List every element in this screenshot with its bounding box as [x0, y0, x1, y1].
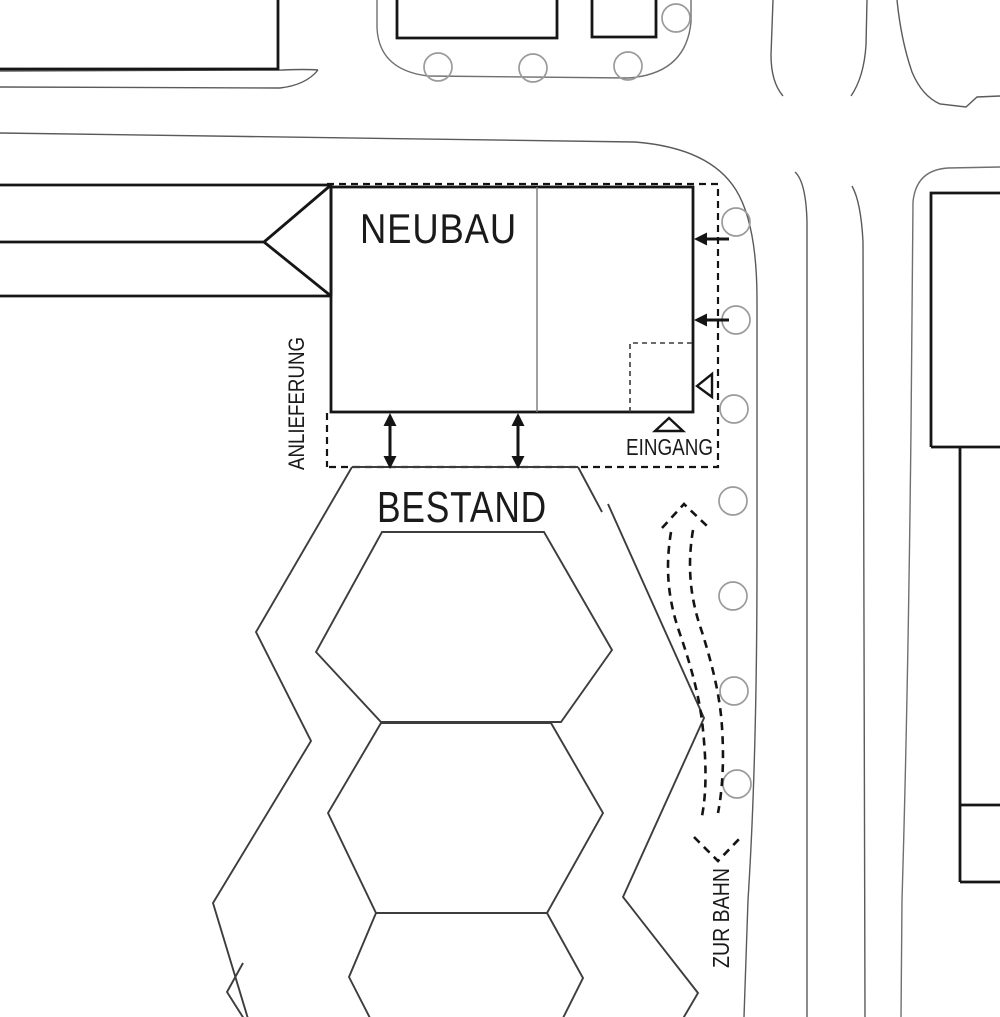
pedestrian-path	[662, 504, 742, 861]
tree-icon	[662, 4, 690, 32]
label-anlieferung: ANLIEFERUNG	[284, 337, 309, 470]
road-line-middle	[795, 172, 807, 1017]
delivery-arrow-left-head-up	[384, 413, 397, 426]
hip-roof-ridge	[0, 185, 331, 296]
bestand-outline-left-inner	[227, 963, 246, 1017]
hexagon-hall-middle	[328, 723, 603, 913]
building-top-center-right	[592, 0, 656, 37]
entry-arrow-upper-head	[694, 233, 707, 246]
bestand-building	[213, 467, 704, 1017]
neighbor-buildings	[0, 0, 1000, 882]
entrance-triangle-main	[655, 418, 683, 431]
path-arrow-up	[662, 504, 707, 528]
building-top-center-left	[397, 0, 557, 38]
plot-boundary-right	[901, 167, 1000, 1017]
road-edge-east	[852, 186, 865, 1017]
delivery-arrow-right-head-up	[512, 413, 525, 426]
building-right	[931, 193, 1000, 447]
entry-arrow-upper	[694, 233, 729, 246]
label-eingang: EINGANG	[626, 434, 713, 460]
tree-icon	[723, 770, 751, 798]
road-edge-north-east	[851, 0, 867, 96]
road-edge-notch	[897, 0, 1000, 107]
tree-icon	[519, 54, 547, 82]
tree-icon	[720, 395, 748, 423]
label-zur-bahn: ZUR BAHN	[708, 868, 734, 968]
tree-icon	[722, 208, 750, 236]
neubau-inner-room-dashed	[630, 343, 693, 412]
path-arrow-down	[694, 836, 742, 861]
road-edge-main	[0, 133, 757, 1017]
building-hip-roof	[0, 185, 331, 296]
trees	[424, 4, 751, 798]
label-neubau: NEUBAU	[360, 205, 517, 252]
hexagon-hall-top	[316, 532, 612, 722]
bestand-outline-right	[578, 467, 704, 1017]
tree-icon	[614, 52, 642, 80]
building-right-wing	[960, 447, 1000, 882]
tree-icon	[719, 582, 747, 610]
hexagon-hall-bottom	[349, 913, 583, 1017]
tree-icon	[720, 677, 748, 705]
building-top-left	[0, 0, 278, 69]
road-edge-north-west	[771, 0, 783, 96]
kerb-line-top-lower	[0, 70, 318, 88]
entrance-triangle-side	[697, 374, 712, 397]
delivery-arrow-right	[512, 413, 525, 469]
entry-arrow-lower-head	[694, 314, 707, 327]
bestand-outline-left	[213, 467, 352, 1017]
path-line-left	[668, 532, 706, 816]
tree-icon	[719, 487, 747, 515]
site-plan-drawing: NEUBAU BESTAND EINGANG ANLIEFERUNG ZUR B…	[0, 0, 1000, 1017]
site-plan: NEUBAU BESTAND EINGANG ANLIEFERUNG ZUR B…	[0, 0, 1000, 1017]
entry-arrow-lower	[694, 314, 729, 327]
hip-roof-walls	[0, 185, 331, 296]
delivery-arrow-left	[384, 413, 397, 469]
label-bestand: BESTAND	[377, 483, 547, 532]
